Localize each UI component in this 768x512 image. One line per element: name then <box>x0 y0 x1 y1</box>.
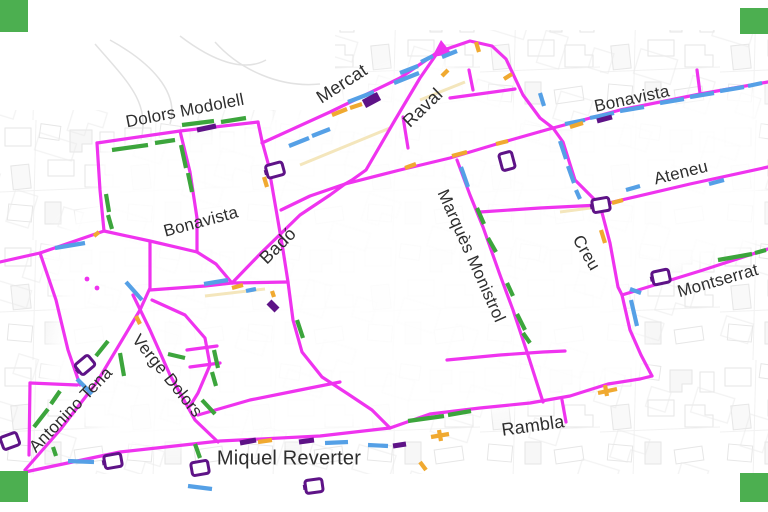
parking-sign-icon <box>191 460 210 476</box>
street-label-miquel-reverter: Miquel Reverter <box>217 448 361 471</box>
street-map <box>0 0 768 512</box>
parking-sign-icon <box>649 269 671 286</box>
corner-marker-top-left <box>0 0 28 32</box>
corner-marker-top-right <box>740 8 768 34</box>
street-line <box>30 383 77 385</box>
corner-marker-bottom-right <box>740 473 768 502</box>
corner-marker-bottom-left <box>0 471 28 502</box>
parking-sign-icon <box>499 151 516 171</box>
parking-sign-icon <box>101 453 122 469</box>
basemap-texture <box>0 0 768 512</box>
map-canvas: Dolors Modolell Mercat Raval Bonavista A… <box>0 0 768 512</box>
parking-sign-icon <box>589 197 610 213</box>
parking-sign-icon <box>302 478 323 494</box>
